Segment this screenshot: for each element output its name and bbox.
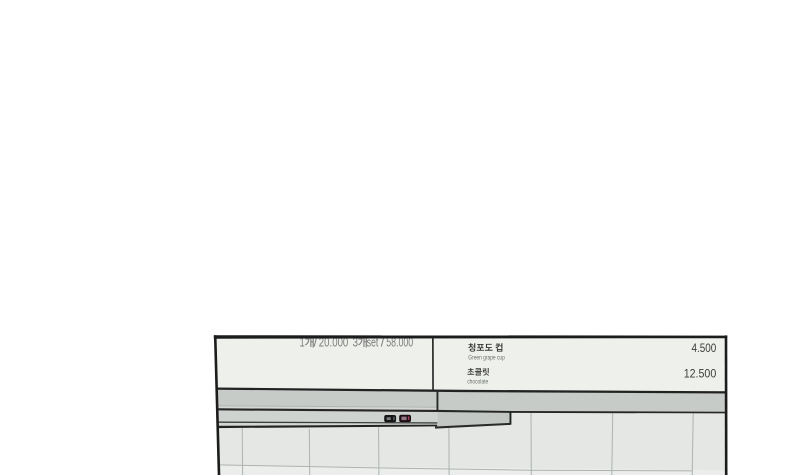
svg-text:Green grape cup: Green grape cup — [468, 354, 505, 361]
svg-text:4.500: 4.500 — [692, 341, 717, 355]
svg-text:12.500: 12.500 — [684, 366, 717, 380]
svg-text:chocolate: chocolate — [467, 378, 488, 385]
